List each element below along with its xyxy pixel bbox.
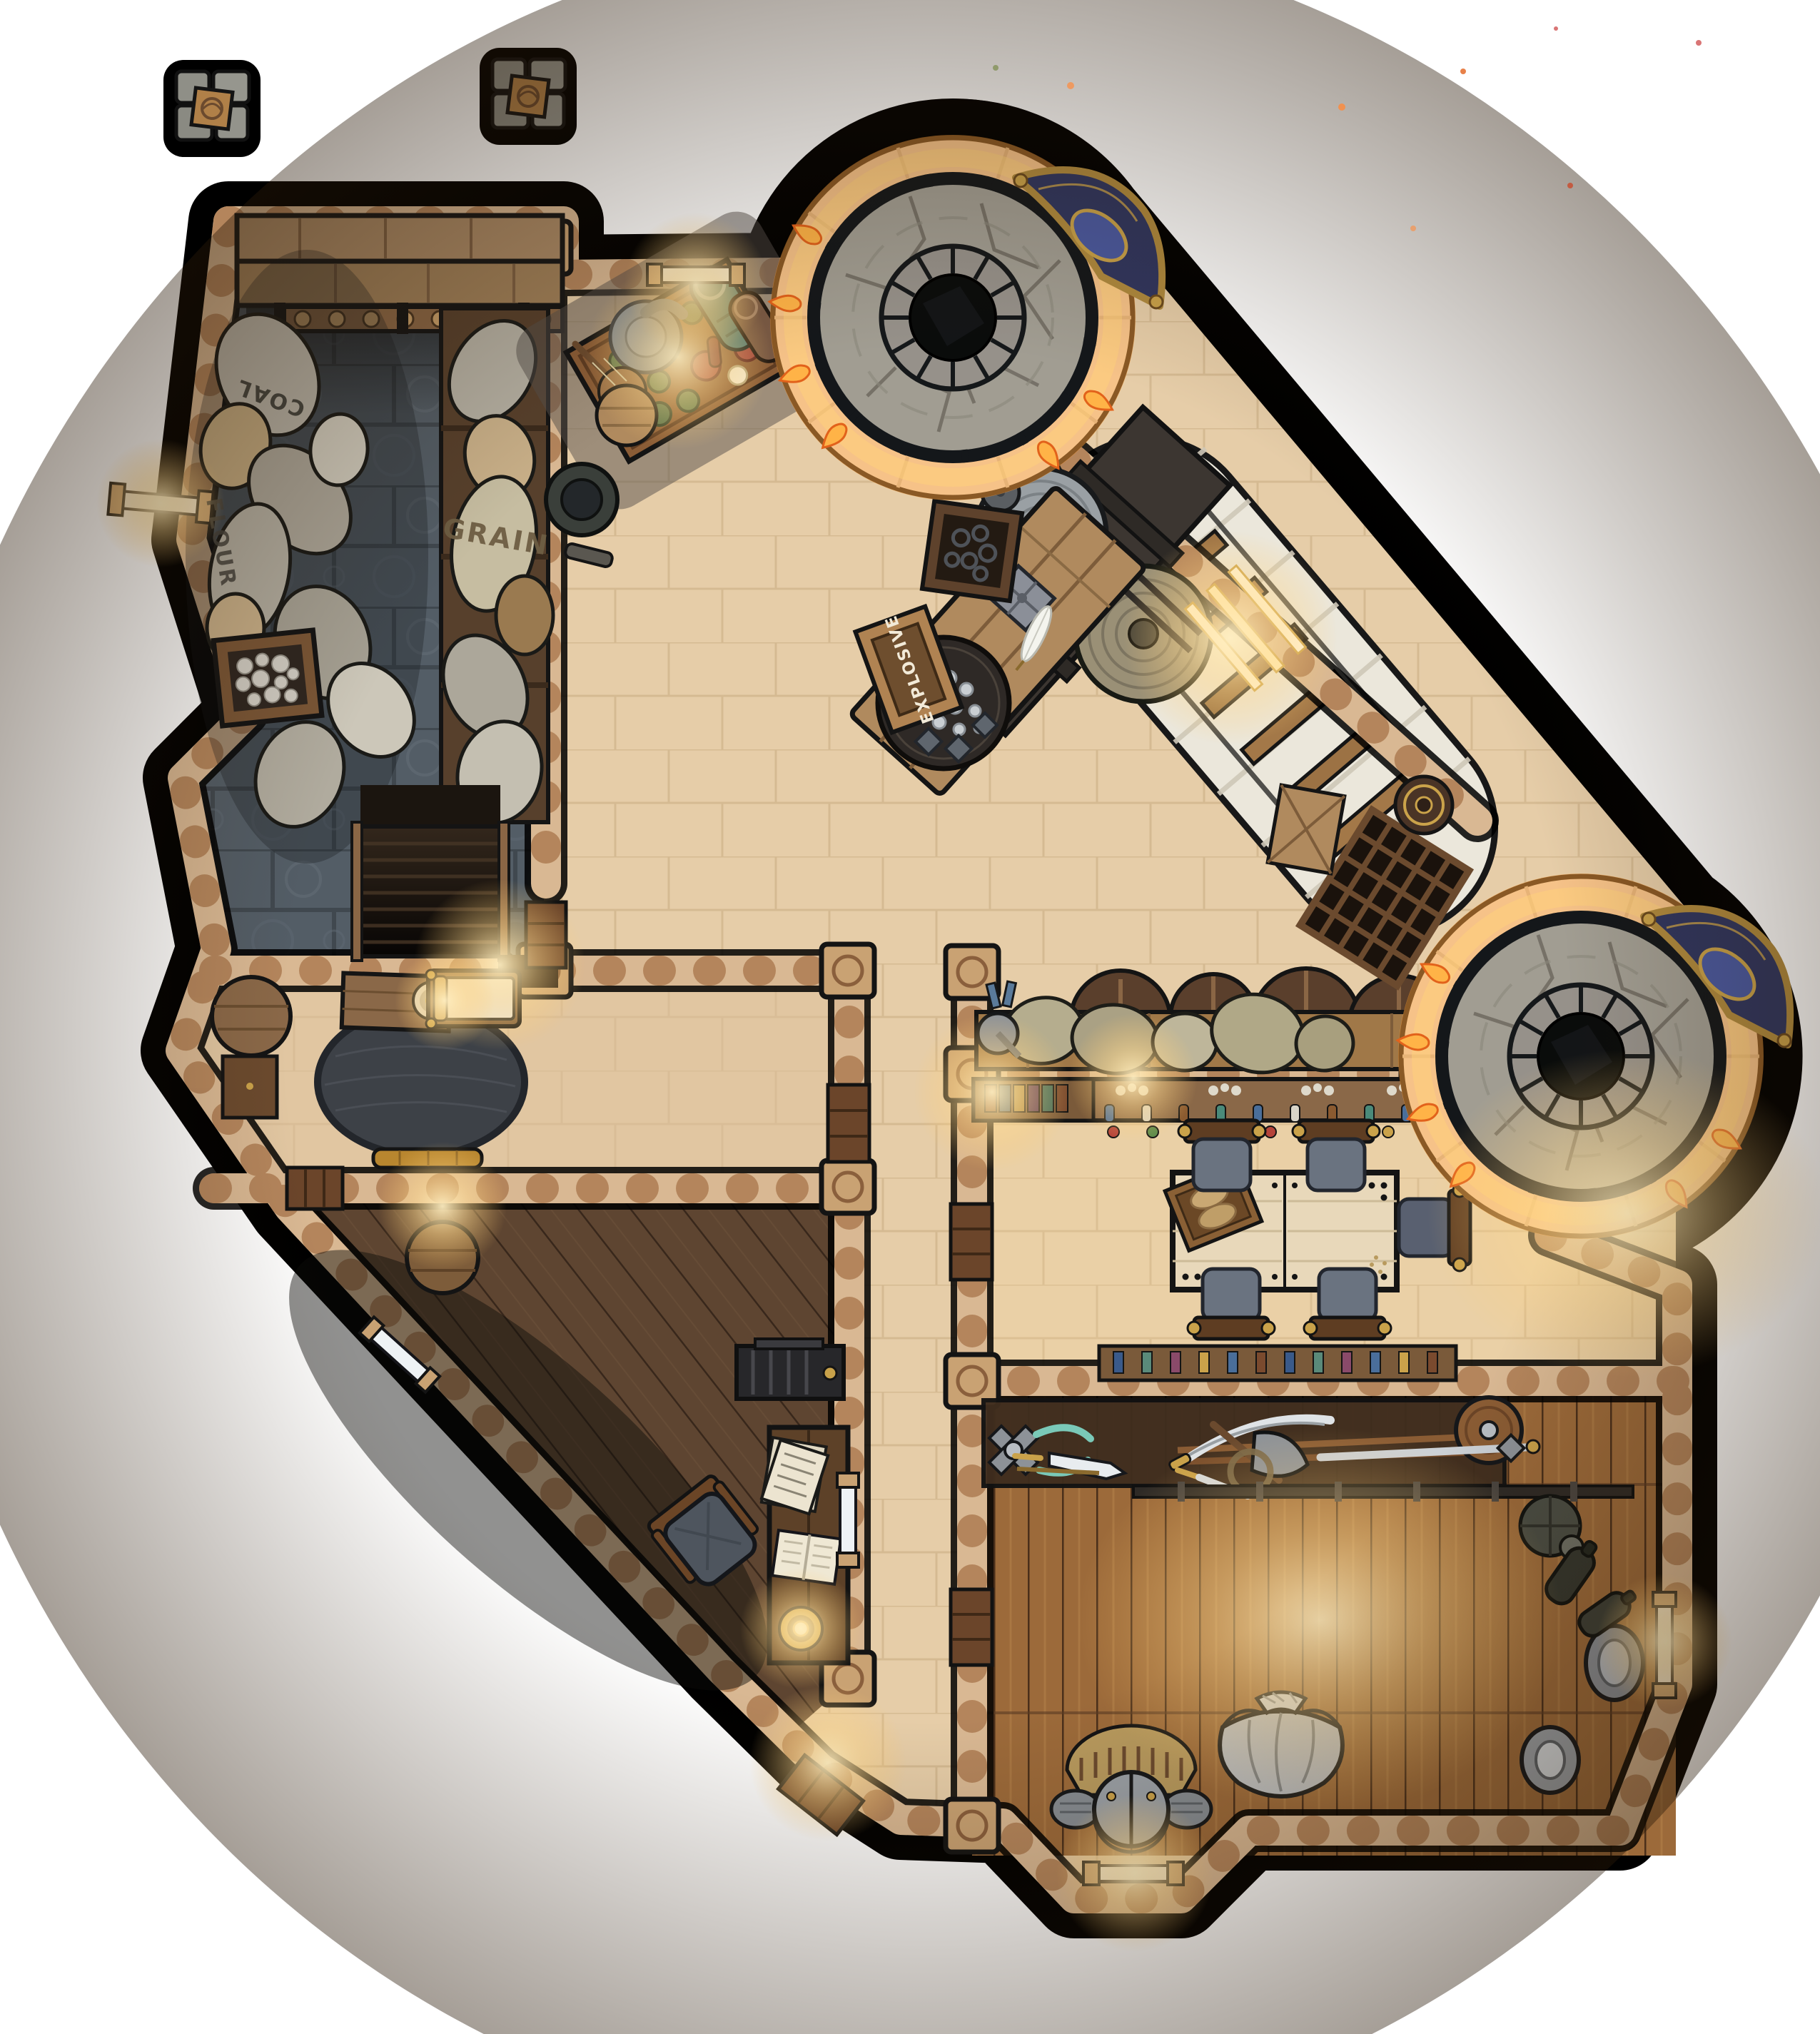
stone-pillar-1 <box>163 60 261 157</box>
battle-map: EXPLOSIVE <box>0 0 1820 2034</box>
vignette <box>0 0 1820 2034</box>
